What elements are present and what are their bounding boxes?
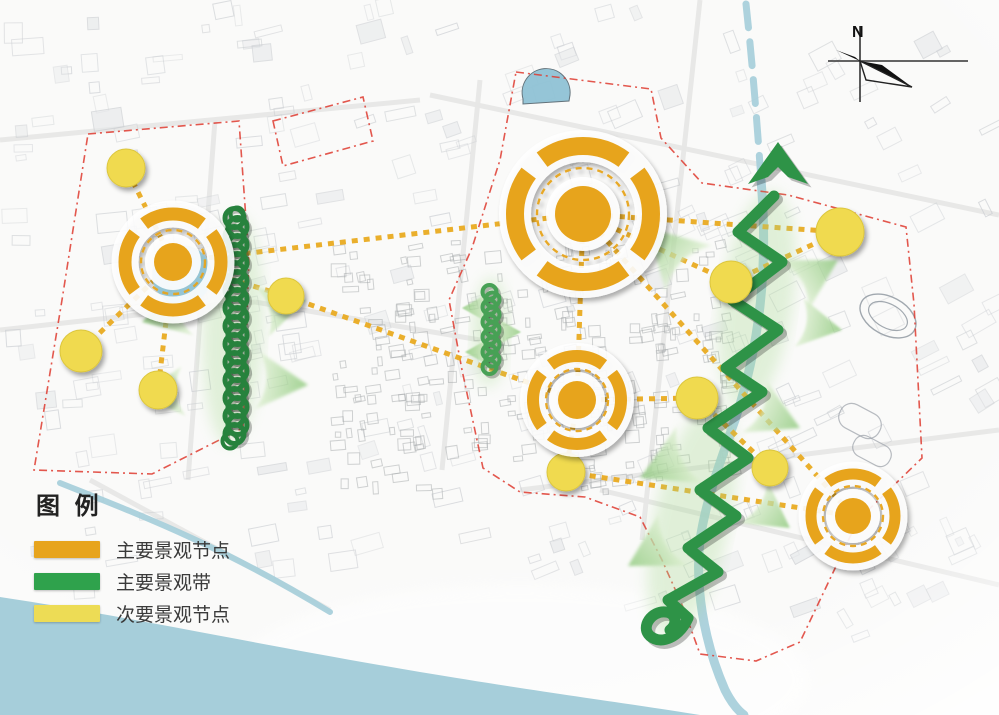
secondary-landscape-node	[676, 377, 718, 419]
secondary-landscape-node	[547, 453, 585, 491]
legend-panel: 图 例 主要景观节点 主要景观带 次要景观节点	[34, 486, 284, 635]
secondary-landscape-node	[268, 278, 304, 314]
secondary-landscape-node	[816, 208, 864, 256]
primary-node-swatch	[34, 541, 100, 558]
legend-title: 图 例	[36, 486, 284, 521]
landscape-belt-coil	[483, 285, 503, 377]
legend-item-primary-node: 主要景观节点	[34, 539, 284, 559]
planning-map-canvas: 图 例 主要景观节点 主要景观带 次要景观节点 N	[0, 0, 999, 715]
landscape-belt-swatch	[34, 573, 100, 590]
secondary-landscape-node	[139, 371, 177, 409]
legend-label: 次要景观节点	[116, 600, 230, 627]
secondary-landscape-node	[752, 450, 788, 486]
secondary-landscape-node	[710, 261, 752, 303]
secondary-landscape-node	[107, 149, 145, 187]
legend-label: 主要景观带	[116, 568, 211, 595]
secondary-node-swatch	[34, 605, 100, 622]
legend-label: 主要景观节点	[116, 536, 230, 563]
legend-item-secondary-node: 次要景观节点	[34, 603, 284, 623]
secondary-landscape-node	[60, 330, 102, 372]
north-arrow-label: N	[852, 24, 864, 42]
legend-item-landscape-belt: 主要景观带	[34, 571, 284, 591]
